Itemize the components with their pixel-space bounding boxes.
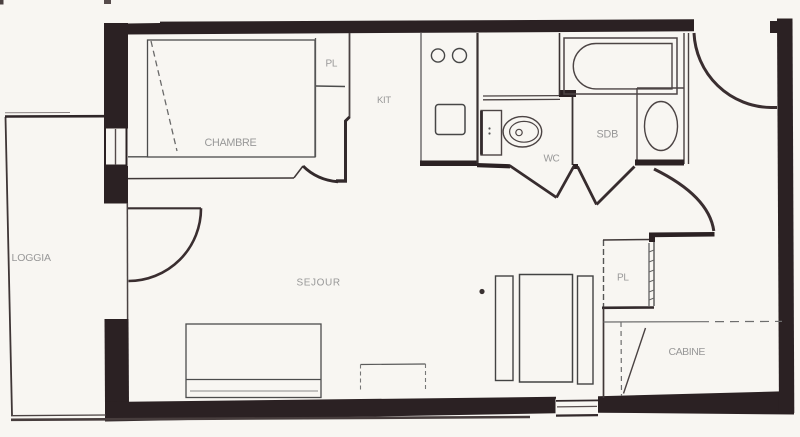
svg-text:PL: PL [617,273,629,284]
svg-text:WC: WC [544,154,560,165]
svg-text:KIT: KIT [377,95,391,106]
svg-text:LOGGIA: LOGGIA [12,252,52,264]
svg-text:CABINE: CABINE [669,346,706,358]
svg-text:SDB: SDB [597,129,619,141]
svg-text:SEJOUR: SEJOUR [297,278,341,289]
svg-text:PL: PL [326,59,338,70]
svg-text:CHAMBRE: CHAMBRE [205,137,257,149]
